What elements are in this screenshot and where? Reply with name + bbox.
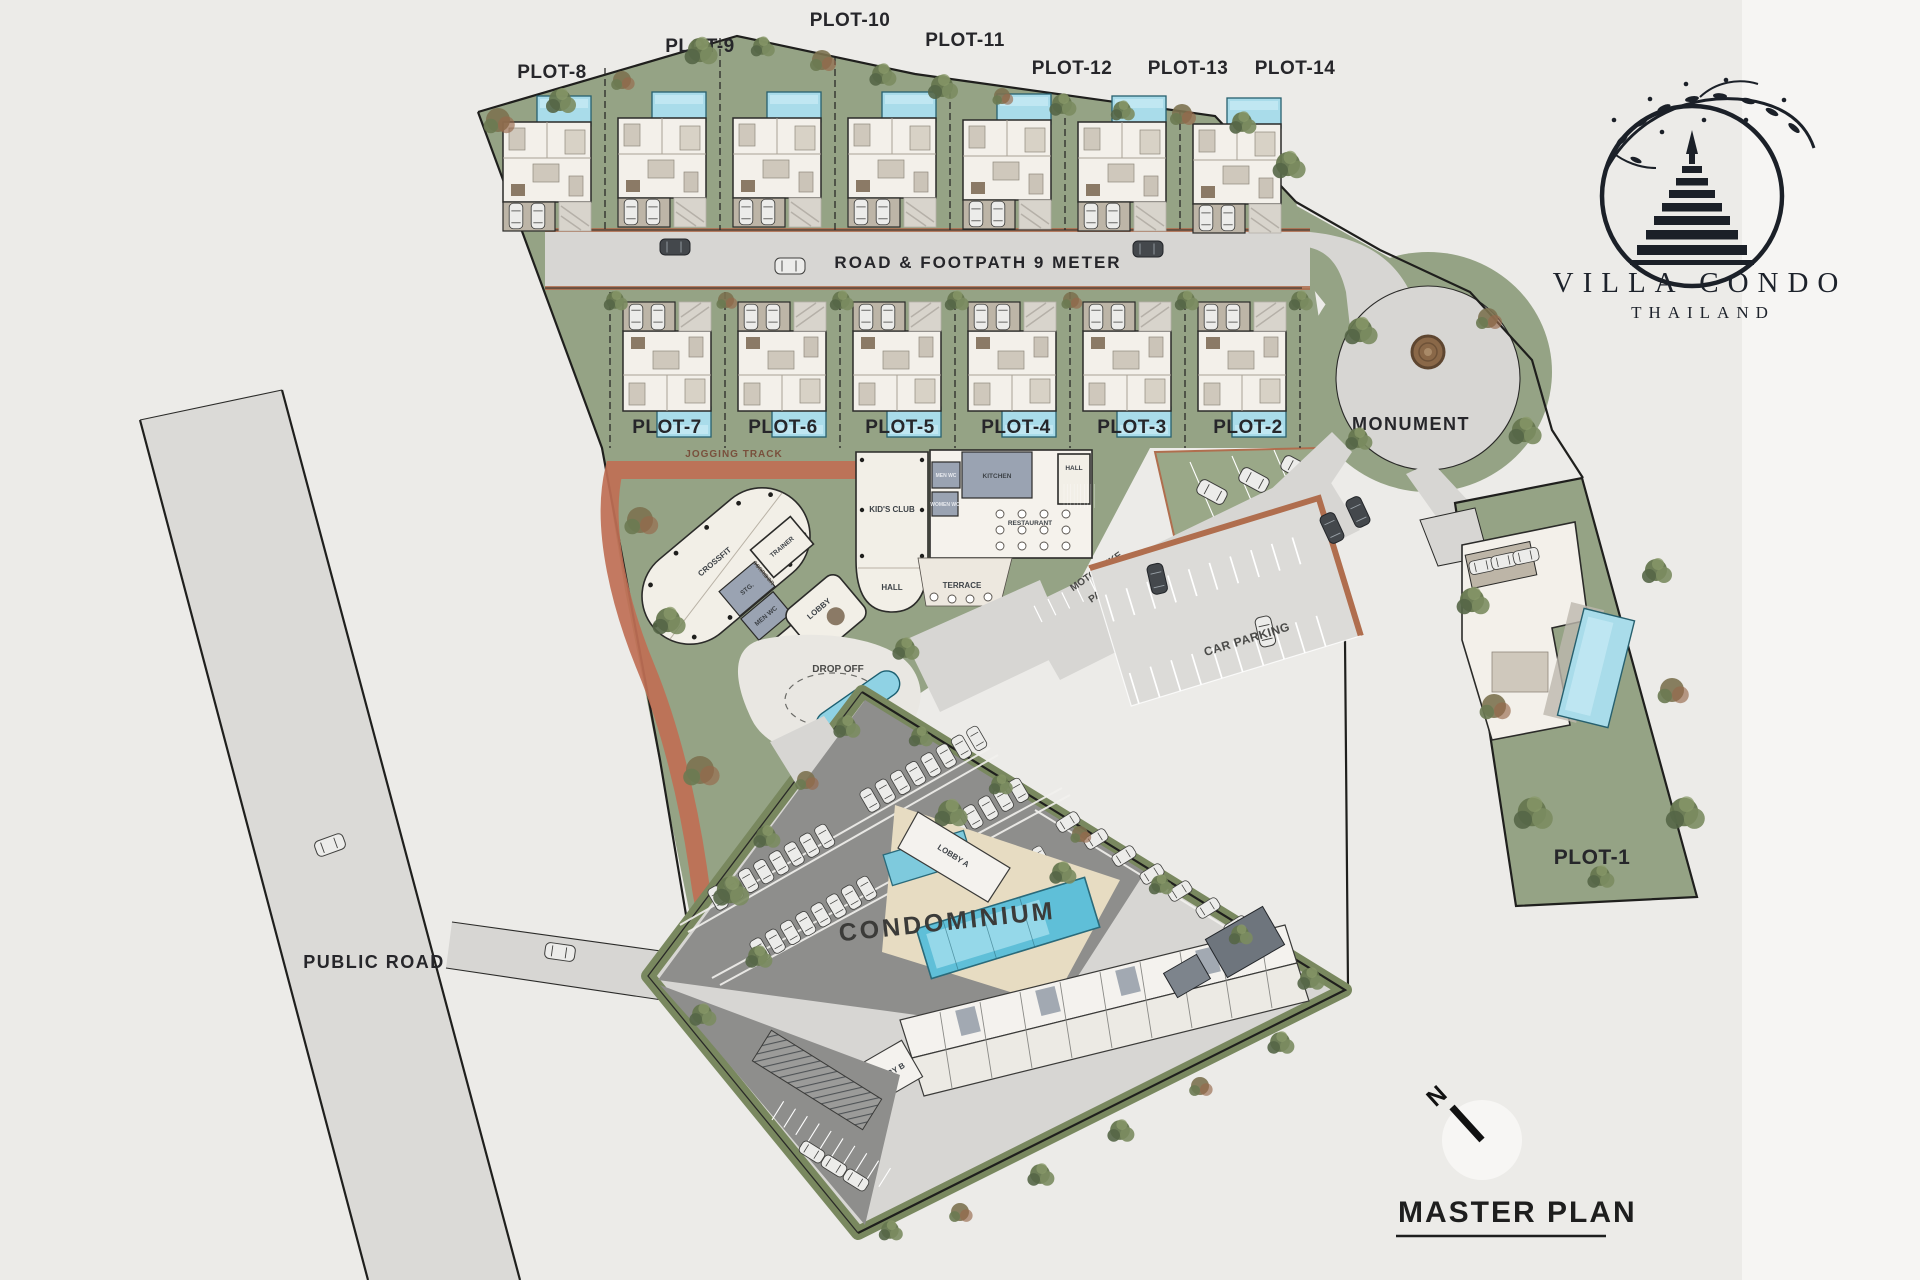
plot-1-label: PLOT-1 bbox=[1554, 846, 1631, 869]
site-plan-drawing: PUBLIC ROAD bbox=[0, 0, 1920, 1280]
brand-country: THAILAND bbox=[1631, 303, 1775, 322]
men-wc-label: MEN WC bbox=[936, 473, 957, 479]
main-road-label: ROAD & FOOTPATH 9 METER bbox=[834, 253, 1121, 272]
plot-3-label: PLOT-3 bbox=[1097, 417, 1167, 438]
master-plan-canvas: PUBLIC ROAD bbox=[0, 0, 1920, 1280]
brand-name: VILLA CONDO bbox=[1553, 267, 1848, 299]
drop-off-label: DROP OFF bbox=[812, 664, 863, 675]
kitchen-label: KITCHEN bbox=[983, 473, 1012, 480]
plot-5-label: PLOT-5 bbox=[865, 417, 935, 438]
hall-lower-label: HALL bbox=[881, 583, 902, 592]
kids-club-label: KID'S CLUB bbox=[869, 505, 915, 514]
terrace-label: TERRACE bbox=[943, 581, 982, 590]
plot-7-label: PLOT-7 bbox=[632, 417, 702, 438]
car-on-road bbox=[775, 258, 805, 274]
women-wc-label: WOMEN WC bbox=[930, 502, 960, 508]
plot-11-label: PLOT-11 bbox=[925, 30, 1005, 51]
jogging-track-label: JOGGING TRACK bbox=[685, 449, 782, 460]
monument-label: MONUMENT bbox=[1352, 414, 1470, 434]
restaurant-building: KITCHEN MEN WC WOMEN WC HALL RESTAURANT bbox=[930, 450, 1094, 558]
plot-14-label: PLOT-14 bbox=[1255, 58, 1336, 79]
plot-4-label: PLOT-4 bbox=[981, 417, 1051, 438]
master-plan-title: MASTER PLAN bbox=[1398, 1196, 1637, 1229]
paper-seam bbox=[1742, 0, 1920, 1280]
car-on-access-road bbox=[544, 942, 576, 962]
plot-10-label: PLOT-10 bbox=[810, 10, 891, 31]
plot-8-label: PLOT-8 bbox=[517, 62, 587, 83]
hall-upper-label: HALL bbox=[1065, 465, 1082, 472]
kids-club-building: KID'S CLUB HALL bbox=[856, 452, 928, 612]
public-road-label: PUBLIC ROAD bbox=[303, 952, 445, 972]
plot-2-label: PLOT-2 bbox=[1213, 417, 1283, 438]
car-on-road bbox=[660, 239, 690, 255]
plot-13-label: PLOT-13 bbox=[1148, 58, 1229, 79]
monument-sculpture bbox=[1412, 336, 1444, 368]
car-on-road bbox=[1133, 241, 1163, 257]
plot-6-label: PLOT-6 bbox=[748, 417, 818, 438]
plot-12-label: PLOT-12 bbox=[1032, 58, 1113, 79]
restaurant-label: RESTAURANT bbox=[1008, 520, 1052, 527]
